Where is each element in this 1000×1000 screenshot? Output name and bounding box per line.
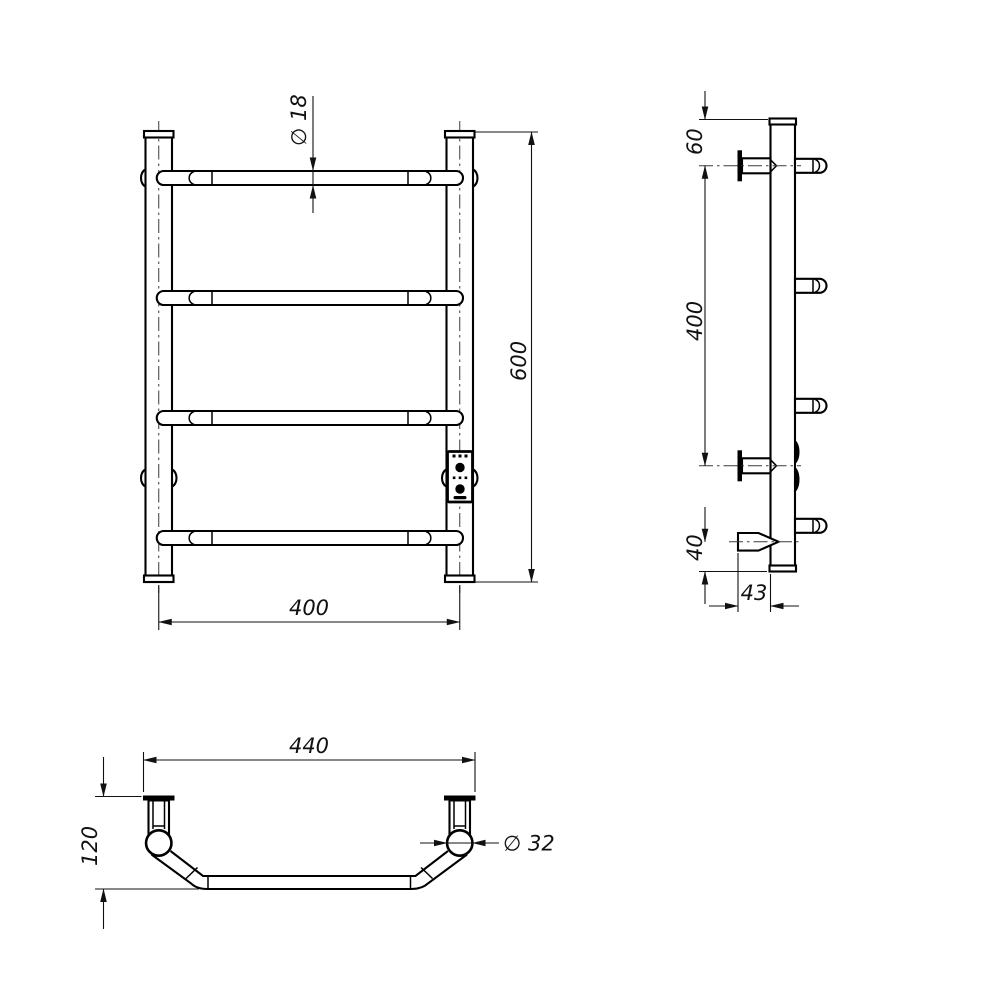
dim-label-depth: 120 — [78, 826, 102, 866]
dim-depth: 120 — [78, 757, 199, 929]
rung-stub-2 — [795, 279, 827, 293]
control-button-lower — [455, 484, 464, 493]
post-cap — [445, 576, 475, 583]
dim-overall-width: 440 — [144, 734, 476, 792]
rung-stub-3 — [795, 399, 827, 413]
dim-label-overall-width: 440 — [289, 734, 329, 758]
dim-post-spacing: 400 — [159, 585, 460, 630]
post-cap — [770, 119, 797, 125]
dim-bracket-spacing: 400 — [683, 166, 707, 466]
rung-3 — [157, 411, 463, 425]
dim-label-bottom-offset: 40 — [683, 534, 707, 561]
dim-label-rung-diameter: ∅ 18 — [287, 94, 311, 146]
dim-overall-height: 600 — [475, 132, 539, 582]
post-cap — [445, 131, 475, 138]
dim-top-offset: 60 — [683, 91, 768, 155]
control-button-upper — [455, 463, 464, 472]
drawing-canvas: ∅ 18 600 400 — [0, 0, 1000, 1000]
side-view: 60 400 40 43 — [683, 91, 827, 612]
dim-label-top-offset: 60 — [683, 128, 707, 155]
control-panel — [448, 452, 473, 503]
post-profile — [771, 123, 796, 567]
dim-label-overall-height: 600 — [507, 341, 531, 381]
rung-1 — [157, 171, 463, 185]
dim-label-bracket-spacing: 400 — [683, 301, 707, 341]
indicator-dots-upper — [453, 455, 468, 458]
post-section-left — [146, 830, 171, 855]
top-view: 440 120 ∅ 32 — [78, 734, 555, 929]
control-panel-edge — [795, 440, 800, 464]
towel-rail-technical-drawing: ∅ 18 600 400 — [0, 0, 1000, 1000]
rung-4 — [157, 531, 463, 545]
control-panel-edge — [795, 467, 800, 492]
rung-2 — [157, 291, 463, 305]
dim-label-post-spacing: 400 — [289, 596, 329, 620]
control-slot — [454, 496, 467, 499]
dim-post-diameter: ∅ 32 — [420, 832, 555, 856]
dim-rung-diameter: ∅ 18 — [287, 94, 313, 213]
indicator-dots-lower — [453, 477, 467, 480]
rung-stub-4 — [795, 519, 827, 533]
post-cap — [770, 566, 797, 572]
post-cap — [144, 576, 174, 583]
dim-label-post-diameter: ∅ 32 — [503, 832, 555, 856]
post-cap — [144, 131, 174, 138]
dim-label-wall-offset: 43 — [741, 581, 768, 605]
bottom-rung-tube — [152, 851, 468, 889]
front-view: ∅ 18 600 400 — [141, 94, 538, 630]
